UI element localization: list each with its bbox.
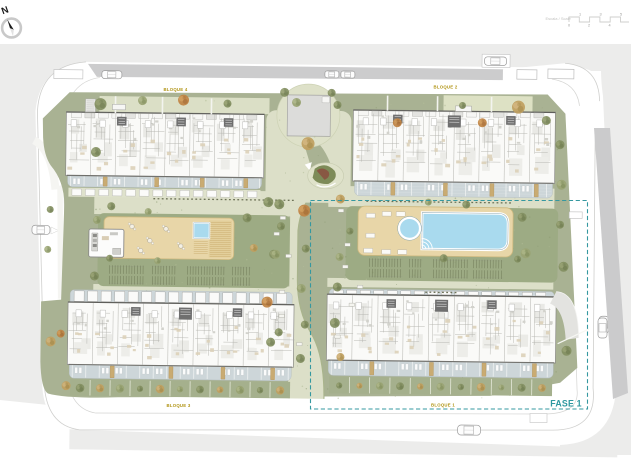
svg-text:FASE 1: FASE 1 [550,399,582,409]
svg-text:BLOQUE 2: BLOQUE 2 [434,85,458,90]
svg-text:4: 4 [608,24,610,28]
svg-text:5: 5 [620,13,622,17]
svg-text:BLOQUE 3: BLOQUE 3 [167,403,191,408]
svg-text:BLOQUE 4: BLOQUE 4 [164,87,188,92]
svg-text:BLOQUE 1: BLOQUE 1 [431,403,455,408]
svg-text:2: 2 [588,24,590,28]
svg-text:0: 0 [568,24,570,28]
svg-text:Escala / Scale: Escala / Scale [546,16,572,21]
svg-text:3: 3 [599,13,601,17]
svg-text:1: 1 [579,13,581,17]
